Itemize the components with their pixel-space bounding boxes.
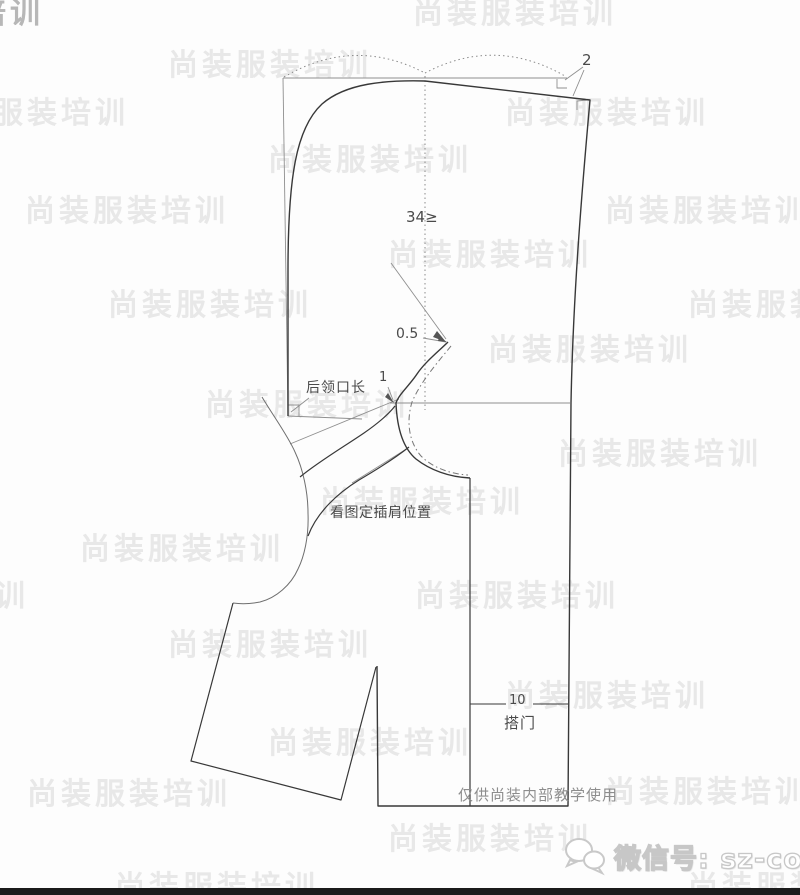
width-34-label: 34≥ xyxy=(406,210,438,225)
left-guide-line xyxy=(283,78,288,416)
pattern-draft-page: 尚装服装培训尚装服装培训尚装服装培训尚装服装培训尚装服装培训尚装服装培训尚装服装… xyxy=(0,0,800,895)
sleeve-center-curve xyxy=(233,397,308,604)
wechat-id-label: 微信号: sz-college xyxy=(614,837,800,876)
wechat-contact: 微信号: sz-college xyxy=(564,836,800,876)
gap-05-label: 0.5 xyxy=(396,327,418,341)
right-angle-mark-top xyxy=(557,79,567,88)
raglan-position-label: 看图定插肩位置 xyxy=(330,506,432,520)
internal-use-notice: 仅供尚装内部教学使用 xyxy=(458,784,618,805)
value-2-label: 2 xyxy=(582,53,592,68)
bubble-small xyxy=(584,852,604,869)
right-angle-mark-shoulder xyxy=(577,100,587,110)
dotted-guides xyxy=(284,55,565,410)
pattern-diagram-svg xyxy=(0,0,800,895)
overlap-10-label: 10 xyxy=(509,694,526,707)
seam-dashdot-curve xyxy=(409,346,468,475)
left-guide-arc xyxy=(284,55,425,77)
side-piece-outline xyxy=(191,603,376,800)
wechat-bubbles-icon xyxy=(564,836,608,876)
shoulder-line xyxy=(290,399,399,444)
neck-point-1-label: 1 xyxy=(379,371,387,384)
right-guide-arc xyxy=(425,55,565,76)
armhole-curve xyxy=(396,342,470,478)
raglan-leader xyxy=(352,448,408,483)
back-neck-label: 后领口长 xyxy=(306,381,366,395)
bottom-bar xyxy=(0,888,800,895)
construction-lines xyxy=(283,67,587,483)
value-2-leaders xyxy=(565,67,584,96)
hood-and-body-outline xyxy=(288,81,590,806)
overlap-label: 搭门 xyxy=(504,716,536,731)
main-outlines xyxy=(191,81,590,806)
